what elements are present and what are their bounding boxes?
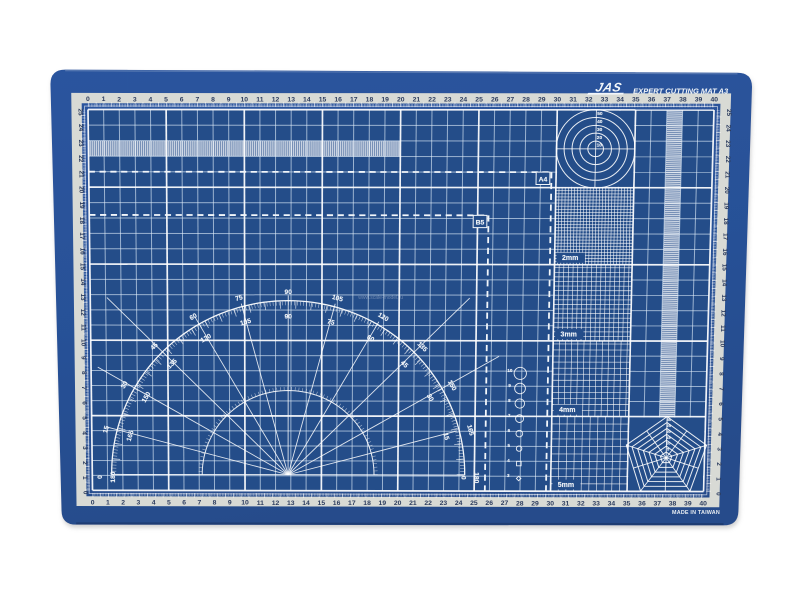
svg-text:28: 28 (516, 500, 524, 507)
svg-text:17: 17 (78, 232, 85, 240)
svg-text:90: 90 (285, 289, 293, 296)
svg-text:17: 17 (350, 96, 358, 103)
svg-text:34: 34 (608, 500, 616, 507)
svg-text:18: 18 (366, 96, 374, 103)
svg-text:9: 9 (228, 500, 232, 507)
svg-text:14: 14 (303, 96, 311, 103)
svg-text:2: 2 (81, 461, 88, 465)
svg-text:6: 6 (180, 96, 184, 103)
svg-text:37: 37 (663, 97, 671, 104)
svg-text:13: 13 (720, 294, 727, 302)
svg-text:7: 7 (717, 387, 724, 391)
svg-text:0: 0 (91, 499, 95, 506)
svg-text:27: 27 (507, 97, 515, 104)
svg-text:14: 14 (720, 279, 727, 287)
svg-text:1: 1 (102, 96, 106, 103)
svg-text:0: 0 (81, 491, 88, 495)
svg-text:3mm: 3mm (561, 331, 577, 338)
svg-text:15: 15 (319, 96, 327, 103)
svg-text:13: 13 (287, 500, 295, 507)
svg-text:30: 30 (667, 417, 672, 422)
svg-text:8: 8 (718, 372, 725, 376)
svg-text:5: 5 (80, 416, 87, 420)
svg-text:33: 33 (592, 500, 600, 507)
svg-text:22: 22 (428, 96, 436, 103)
svg-text:6: 6 (80, 401, 87, 405)
svg-text:12: 12 (79, 309, 86, 317)
svg-text:11: 11 (79, 324, 86, 331)
svg-text:10: 10 (597, 143, 603, 149)
svg-text:8: 8 (211, 96, 215, 103)
svg-text:10: 10 (240, 96, 248, 103)
svg-text:7: 7 (195, 96, 199, 103)
svg-text:2: 2 (715, 462, 722, 466)
svg-text:180: 180 (110, 471, 117, 482)
svg-text:9: 9 (718, 357, 725, 361)
svg-text:5: 5 (716, 417, 723, 421)
svg-text:0: 0 (86, 96, 90, 103)
svg-text:20: 20 (666, 429, 671, 434)
svg-text:3: 3 (133, 96, 137, 103)
svg-text:MADE IN TAIWAN: MADE IN TAIWAN (672, 510, 720, 516)
svg-text:28: 28 (522, 97, 530, 104)
svg-text:19: 19 (722, 202, 729, 210)
svg-text:23: 23 (444, 97, 452, 104)
svg-text:20: 20 (397, 96, 405, 103)
svg-text:7: 7 (197, 500, 201, 507)
svg-text:32: 32 (585, 97, 593, 104)
svg-text:31: 31 (569, 97, 577, 104)
svg-text:18: 18 (78, 217, 85, 225)
svg-text:18: 18 (722, 218, 729, 226)
svg-text:8: 8 (80, 371, 87, 375)
svg-text:31: 31 (562, 500, 570, 507)
svg-text:20: 20 (394, 500, 402, 507)
svg-text:2: 2 (117, 96, 121, 103)
svg-text:30: 30 (554, 97, 562, 104)
svg-text:4: 4 (716, 432, 723, 436)
svg-text:29: 29 (531, 500, 539, 507)
svg-text:24: 24 (77, 124, 84, 132)
svg-text:25: 25 (77, 108, 84, 116)
svg-text:0: 0 (714, 492, 721, 496)
svg-text:50: 50 (597, 111, 603, 117)
svg-text:6: 6 (182, 500, 186, 507)
svg-text:25: 25 (470, 500, 478, 507)
svg-text:2mm: 2mm (562, 255, 578, 262)
svg-text:32: 32 (577, 500, 585, 507)
svg-text:24: 24 (725, 125, 732, 133)
svg-text:20: 20 (78, 186, 85, 194)
svg-text:13: 13 (79, 293, 86, 301)
svg-text:5: 5 (167, 500, 171, 507)
svg-text:12: 12 (719, 310, 726, 318)
svg-text:17: 17 (722, 233, 729, 241)
svg-text:10: 10 (666, 441, 671, 446)
svg-text:30: 30 (597, 127, 603, 133)
svg-text:4: 4 (81, 431, 88, 435)
svg-text:22: 22 (724, 156, 731, 164)
svg-text:3: 3 (81, 446, 88, 450)
svg-text:16: 16 (333, 500, 341, 507)
svg-text:36: 36 (648, 97, 656, 104)
svg-text:23: 23 (724, 140, 731, 148)
svg-text:13: 13 (287, 96, 295, 103)
svg-text:11: 11 (719, 325, 726, 332)
svg-text:5mm: 5mm (558, 482, 574, 489)
svg-text:40: 40 (597, 119, 603, 125)
svg-text:15: 15 (79, 263, 86, 271)
svg-text:16: 16 (78, 248, 85, 256)
svg-text:10: 10 (719, 340, 726, 348)
svg-text:22: 22 (77, 155, 84, 163)
svg-text:27: 27 (501, 500, 509, 507)
svg-text:15: 15 (666, 435, 671, 440)
svg-text:11: 11 (257, 500, 264, 507)
svg-text:16: 16 (721, 248, 728, 256)
svg-text:26: 26 (485, 500, 493, 507)
svg-text:6: 6 (717, 402, 724, 406)
svg-text:18: 18 (363, 500, 371, 507)
svg-text:36: 36 (638, 501, 646, 508)
svg-text:25: 25 (666, 423, 671, 428)
svg-text:9: 9 (227, 96, 231, 103)
svg-text:12: 12 (272, 500, 280, 507)
svg-text:38: 38 (669, 501, 677, 508)
svg-text:24: 24 (455, 500, 463, 507)
svg-text:24: 24 (460, 97, 468, 104)
svg-text:22: 22 (424, 500, 432, 507)
svg-text:20: 20 (723, 187, 730, 195)
svg-text:5: 5 (164, 96, 168, 103)
svg-text:25: 25 (475, 97, 483, 104)
svg-text:25: 25 (725, 109, 732, 117)
svg-text:15: 15 (318, 500, 326, 507)
svg-text:37: 37 (653, 501, 661, 508)
svg-text:EXPERT CUTTING MAT A3: EXPERT CUTTING MAT A3 (633, 87, 728, 96)
svg-text:1: 1 (715, 477, 722, 481)
svg-text:2: 2 (121, 499, 125, 506)
svg-text:19: 19 (78, 201, 85, 209)
svg-text:3: 3 (716, 447, 723, 451)
svg-text:7: 7 (80, 386, 87, 390)
svg-text:0: 0 (460, 476, 467, 480)
svg-text:40: 40 (699, 501, 707, 508)
svg-text:20: 20 (597, 135, 603, 141)
svg-text:0: 0 (97, 475, 104, 479)
svg-text:1: 1 (81, 476, 88, 480)
svg-text:35: 35 (623, 500, 631, 507)
svg-text:14: 14 (79, 278, 86, 286)
svg-text:9: 9 (80, 356, 87, 360)
svg-text:JAS: JAS (594, 81, 623, 95)
svg-text:39: 39 (684, 501, 692, 508)
svg-text:3: 3 (136, 500, 140, 507)
svg-text:1: 1 (106, 499, 110, 506)
svg-text:90: 90 (285, 314, 293, 321)
svg-text:38: 38 (679, 97, 687, 104)
svg-text:19: 19 (379, 500, 387, 507)
svg-text:4: 4 (152, 500, 156, 507)
svg-text:35: 35 (632, 97, 640, 104)
svg-text:180: 180 (472, 472, 479, 483)
svg-text:4: 4 (149, 96, 153, 103)
svg-text:10: 10 (80, 339, 87, 347)
svg-text:40: 40 (710, 97, 718, 104)
svg-text:11: 11 (256, 96, 263, 103)
svg-text:21: 21 (723, 171, 730, 179)
svg-text:39: 39 (695, 97, 703, 104)
svg-text:15: 15 (721, 264, 728, 272)
svg-text:16: 16 (334, 96, 342, 103)
svg-text:23: 23 (440, 500, 448, 507)
svg-text:29: 29 (538, 97, 546, 104)
svg-text:17: 17 (348, 500, 356, 507)
svg-text:26: 26 (491, 97, 499, 104)
svg-text:A4: A4 (539, 176, 548, 183)
svg-text:4mm: 4mm (559, 407, 575, 414)
svg-text:33: 33 (601, 97, 609, 104)
svg-text:14: 14 (302, 500, 310, 507)
svg-text:21: 21 (77, 171, 84, 179)
svg-text:8: 8 (213, 500, 217, 507)
svg-text:21: 21 (413, 96, 421, 103)
svg-text:12: 12 (272, 96, 280, 103)
svg-text:www.scale-model.ru: www.scale-model.ru (358, 295, 403, 301)
svg-text:10: 10 (507, 368, 513, 373)
svg-text:10: 10 (241, 500, 249, 507)
svg-text:23: 23 (77, 140, 84, 148)
svg-text:30: 30 (547, 500, 555, 507)
svg-text:34: 34 (616, 97, 624, 104)
svg-text:21: 21 (409, 500, 417, 507)
svg-text:B5: B5 (476, 220, 485, 227)
svg-text:19: 19 (381, 96, 389, 103)
